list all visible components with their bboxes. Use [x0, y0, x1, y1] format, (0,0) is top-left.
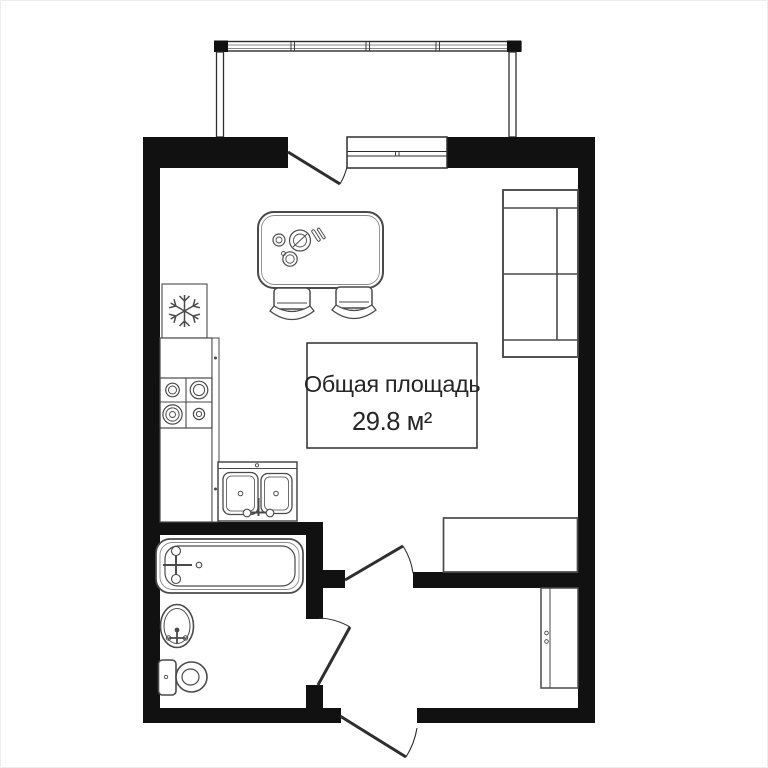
chair-icon — [270, 288, 314, 320]
wall-bathroom-right-upper — [306, 522, 323, 619]
bathtub-icon — [156, 539, 303, 593]
railing-post-right — [507, 41, 521, 53]
balcony-door — [288, 152, 347, 184]
dining-table-icon — [258, 212, 383, 288]
wardrobe-icon — [541, 588, 578, 688]
railing-side-right — [509, 52, 516, 137]
wall-bottom-left — [143, 708, 341, 723]
sofa-icon — [503, 190, 578, 357]
area-label-box: Общая площадь 29.8 м² — [304, 343, 480, 448]
floor-plan-page: Общая площадь 29.8 м² — [0, 0, 768, 768]
wall-bathroom-stub — [323, 570, 345, 588]
kitchen-counter — [160, 338, 219, 522]
bathroom-door — [318, 618, 350, 685]
chair-icon — [332, 287, 376, 319]
window-symbol — [347, 137, 447, 168]
floor-plan-drawing: Общая площадь 29.8 м² — [0, 0, 768, 768]
washbasin-icon — [161, 605, 194, 648]
wall-bathroom-right-lower — [306, 685, 323, 708]
wall-bottom-right — [417, 708, 595, 723]
wall-right — [578, 137, 595, 723]
wall-bathroom-top — [143, 522, 323, 535]
toilet-icon — [159, 660, 208, 695]
dresser-icon — [444, 518, 578, 572]
area-label-title: Общая площадь — [304, 371, 480, 397]
area-label-value: 29.8 м² — [352, 408, 432, 436]
entrance-door — [340, 716, 417, 757]
kitchen-sink-icon — [218, 462, 297, 521]
wall-top-left — [143, 137, 288, 168]
wall-top-right — [447, 137, 595, 168]
fridge — [162, 284, 207, 338]
wall-hallway — [413, 572, 578, 588]
railing-post-left — [214, 41, 228, 53]
balcony-railing — [214, 41, 521, 138]
wall-left — [143, 137, 160, 723]
railing-side-left — [217, 52, 224, 137]
room-door — [345, 546, 413, 580]
